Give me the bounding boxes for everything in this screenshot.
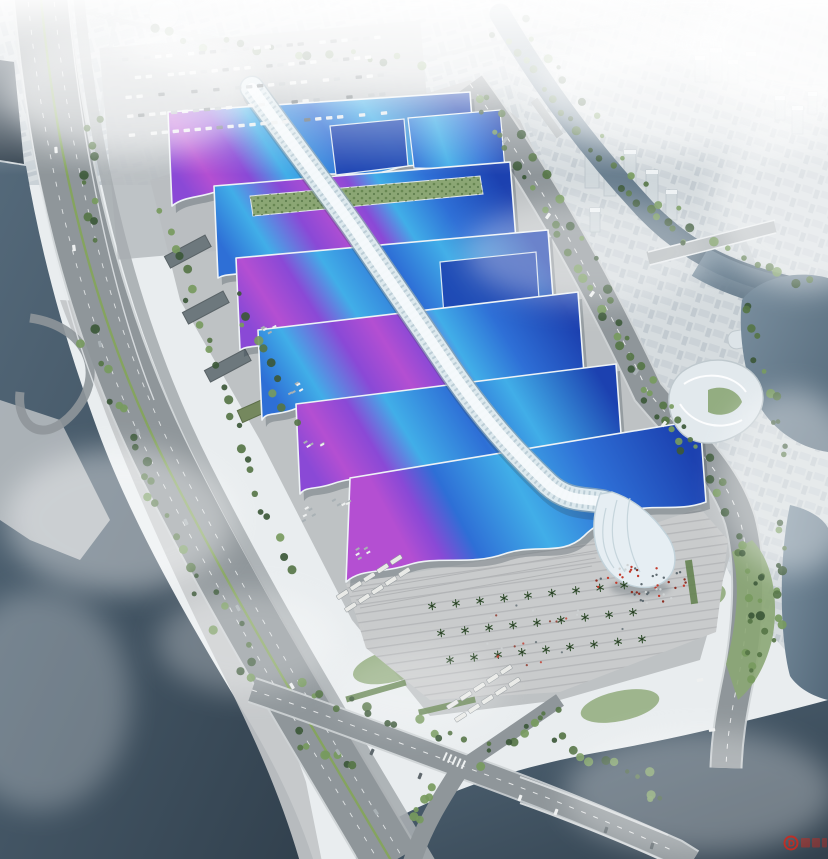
aerial-rendering: D xyxy=(0,0,828,859)
aerial-render-stage: D xyxy=(0,0,828,859)
watermark-logo-letter: D xyxy=(788,840,795,850)
watermark-glyph xyxy=(801,838,810,848)
hall-annex-dark xyxy=(330,119,408,175)
watermark-glyph xyxy=(822,838,827,848)
hall-annex xyxy=(408,110,505,170)
watermark-glyph xyxy=(812,838,820,848)
east-pond-south xyxy=(782,505,828,700)
